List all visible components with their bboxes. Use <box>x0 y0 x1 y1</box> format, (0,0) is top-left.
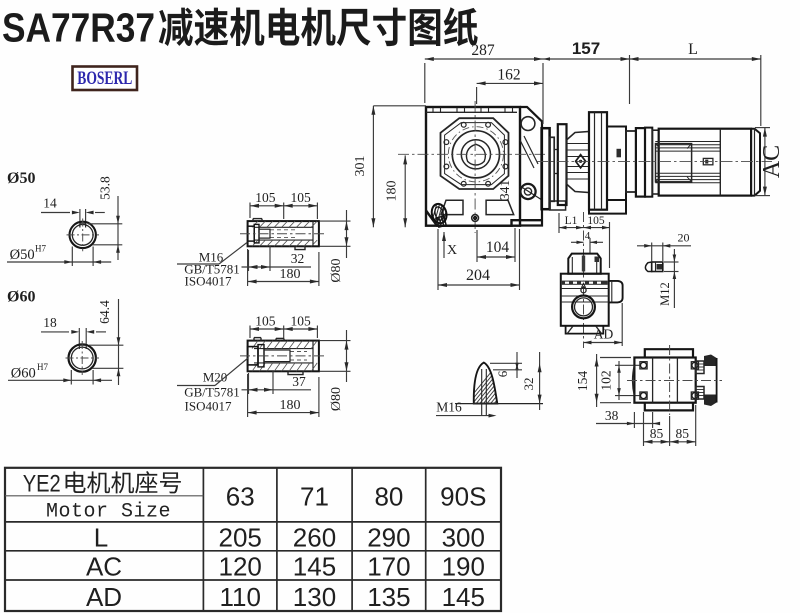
svg-text:37: 37 <box>292 374 306 389</box>
svg-text:190: 190 <box>442 552 485 582</box>
svg-text:145: 145 <box>442 582 485 612</box>
svg-text:Ø80: Ø80 <box>329 387 344 411</box>
svg-text:53.8: 53.8 <box>98 176 113 200</box>
svg-text:H7: H7 <box>37 362 48 372</box>
svg-text:AD: AD <box>594 327 614 342</box>
svg-text:6: 6 <box>495 370 510 377</box>
svg-text:L1: L1 <box>565 215 578 227</box>
svg-text:64.4: 64.4 <box>97 300 112 324</box>
svg-text:Ø50: Ø50 <box>10 247 35 263</box>
svg-text:290: 290 <box>367 523 410 553</box>
svg-text:Motor Size: Motor Size <box>46 501 171 524</box>
svg-text:204: 204 <box>466 267 490 284</box>
svg-text:180: 180 <box>280 267 301 282</box>
svg-text:170: 170 <box>367 552 410 582</box>
svg-text:105: 105 <box>255 313 276 328</box>
svg-text:105: 105 <box>587 215 605 227</box>
svg-text:180: 180 <box>385 181 400 202</box>
svg-text:M16: M16 <box>436 400 462 415</box>
svg-text:32: 32 <box>291 251 305 266</box>
svg-text:105: 105 <box>290 190 311 205</box>
svg-text:AC: AC <box>759 145 785 178</box>
svg-text:AC: AC <box>86 552 122 582</box>
svg-text:157: 157 <box>572 39 600 58</box>
svg-text:L: L <box>688 41 698 58</box>
svg-text:38: 38 <box>605 408 619 423</box>
svg-text:110: 110 <box>219 582 260 612</box>
svg-text:Ø50: Ø50 <box>7 170 35 187</box>
svg-text:X: X <box>447 243 457 258</box>
svg-text:4: 4 <box>585 230 591 242</box>
svg-text:BOSERL: BOSERL <box>77 69 132 89</box>
svg-text:63: 63 <box>226 482 255 512</box>
svg-text:301: 301 <box>353 156 368 177</box>
svg-text:180: 180 <box>280 398 301 413</box>
svg-text:20: 20 <box>678 231 690 245</box>
svg-text:ISO4017: ISO4017 <box>185 399 232 414</box>
svg-text:105: 105 <box>255 190 276 205</box>
svg-text:205: 205 <box>219 523 262 553</box>
svg-text:135: 135 <box>367 582 410 612</box>
svg-text:SA77R37: SA77R37 <box>2 5 155 51</box>
svg-text:145: 145 <box>293 552 336 582</box>
svg-text:162: 162 <box>497 67 520 84</box>
svg-text:Ø60: Ø60 <box>11 366 36 382</box>
svg-text:14: 14 <box>43 196 57 211</box>
svg-text:71: 71 <box>300 482 329 512</box>
svg-text:85: 85 <box>650 426 664 441</box>
svg-text:105: 105 <box>290 313 311 328</box>
svg-text:L: L <box>94 523 108 553</box>
svg-text:80: 80 <box>374 482 403 512</box>
svg-text:90S: 90S <box>440 482 486 512</box>
svg-text:18: 18 <box>43 315 57 330</box>
svg-text:32: 32 <box>521 378 536 391</box>
svg-text:287: 287 <box>471 42 495 59</box>
svg-text:102: 102 <box>599 370 614 390</box>
svg-text:ISO4017: ISO4017 <box>185 274 232 289</box>
svg-text:85: 85 <box>676 426 690 441</box>
svg-text:154: 154 <box>575 371 590 392</box>
svg-text:Ø60: Ø60 <box>7 289 35 306</box>
svg-text:YE2: YE2 <box>23 471 61 498</box>
svg-text:120: 120 <box>219 552 262 582</box>
svg-text:GB/T5781: GB/T5781 <box>184 385 240 400</box>
svg-text:260: 260 <box>293 523 336 553</box>
svg-text:M20: M20 <box>203 370 228 385</box>
svg-text:M12: M12 <box>658 282 672 306</box>
svg-text:104: 104 <box>486 239 510 256</box>
svg-text:H7: H7 <box>35 244 46 254</box>
svg-text:AD: AD <box>86 582 122 612</box>
svg-text:300: 300 <box>442 523 485 553</box>
svg-text:Ø80: Ø80 <box>329 258 344 282</box>
svg-text:130: 130 <box>293 582 336 612</box>
